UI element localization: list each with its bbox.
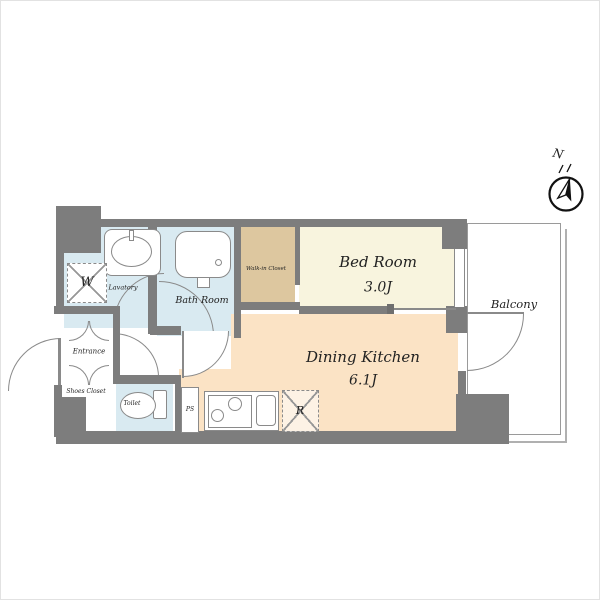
bathtub-icon <box>175 231 231 278</box>
wall-wic-bedroom <box>295 227 300 285</box>
compass-north-label: N <box>551 147 564 162</box>
washer-space-label: W <box>80 276 93 290</box>
wall-top <box>96 219 467 227</box>
toilet-label: Toilet <box>124 401 141 407</box>
wall-bath-bottom <box>150 326 181 335</box>
entrance-fold-door-arc <box>89 321 109 341</box>
column-top-left <box>56 206 101 253</box>
wall-entrance-top <box>54 306 120 314</box>
kitchen-sink-icon <box>256 395 276 426</box>
balcony-door-leaf <box>467 312 524 314</box>
wall-dk-right <box>458 371 466 433</box>
entry-door-leaf <box>58 338 61 391</box>
bedroom-label: Bed Room <box>339 255 417 271</box>
entry-door-arc <box>8 338 61 391</box>
dining-kitchen-label: Dining Kitchen <box>306 350 420 366</box>
column-mid-right <box>446 306 467 333</box>
stove-burner-icon <box>228 397 242 411</box>
wall-left-upper <box>56 251 64 313</box>
wall-bedroom-dk <box>299 306 393 314</box>
walk-in-closet-label: Walk-in Closet <box>246 267 286 273</box>
bathtub-drain-icon <box>215 259 222 266</box>
bedroom-window <box>454 249 465 307</box>
entrance-label: Entrance <box>73 348 106 355</box>
balcony-outer-line-right <box>565 229 567 443</box>
wall-bottom <box>56 431 509 444</box>
entrance-fold-door-arc <box>89 365 109 385</box>
balcony-label: Balcony <box>491 298 537 310</box>
sliding-door-line <box>393 308 456 310</box>
sliding-door-stop <box>387 304 394 314</box>
dining-kitchen-area-label: 6.1J <box>349 374 377 389</box>
wall-wic-bottom <box>234 302 300 310</box>
wall-above-toilet <box>113 375 175 384</box>
pipe-space-label: PS <box>186 407 194 413</box>
bathroom-label: Bath Room <box>175 296 228 306</box>
compass-icon <box>539 149 593 221</box>
entrance-fold-door-arc <box>69 321 89 341</box>
stove-burner-icon <box>211 409 224 422</box>
bath-faucet-icon <box>197 277 210 288</box>
bedroom-area-label: 3.0J <box>364 281 392 296</box>
floor-plan: N Bed Room 3.0J Dining Kitchen 6.1J Bath… <box>0 0 600 600</box>
hall-dk-door-leaf <box>182 331 184 378</box>
faucet-icon <box>129 230 134 241</box>
wall-entrance-right <box>113 309 120 381</box>
shoes-closet-label: Shoes Closet <box>66 389 105 395</box>
refrigerator-space-label: R <box>296 405 304 417</box>
wall-bath-right <box>234 227 241 338</box>
entrance-fold-door-arc <box>69 365 89 385</box>
lavatory-label: Lavatory <box>108 285 137 292</box>
